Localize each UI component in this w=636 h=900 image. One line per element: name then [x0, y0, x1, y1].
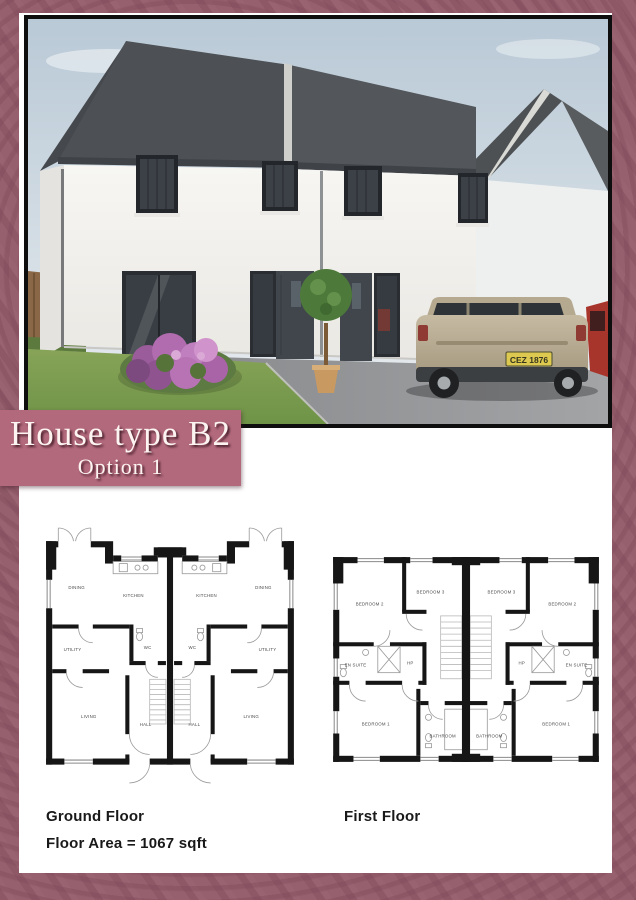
- room-label: BATHROOM: [476, 734, 503, 739]
- caption-floor-area: Floor Area = 1067 sqft: [46, 835, 207, 852]
- room-label: BEDROOM 3: [417, 590, 445, 595]
- caption-ground-floor: Ground Floor: [46, 808, 144, 825]
- room-label: WC: [189, 645, 197, 650]
- downpipe: [61, 169, 64, 347]
- caption-first-floor: First Floor: [344, 808, 420, 825]
- room-label: HP: [407, 661, 413, 666]
- cloud: [496, 39, 600, 59]
- downpipe: [320, 171, 323, 357]
- brochure-page: { "banner": { "title": "House type B2", …: [0, 0, 636, 900]
- room-label: HALL: [140, 722, 152, 727]
- license-plate-text: CEZ 1876: [510, 355, 549, 365]
- room-label: UTILITY: [259, 647, 277, 652]
- room-label: DINING: [68, 585, 85, 590]
- first-floor-plan: BEDROOM 2 BEDROOM 3 BEDROOM 3 BEDROOM 2 …: [331, 551, 601, 770]
- car: CEZ 1876: [406, 297, 598, 401]
- room-label: KITCHEN: [123, 593, 144, 598]
- room-label: UTILITY: [64, 647, 82, 652]
- house-photo: CEZ 1876: [28, 19, 608, 424]
- room-label: HP: [519, 661, 525, 666]
- title-banner: House type B2 Option 1: [0, 410, 241, 486]
- page-title: House type B2: [0, 414, 241, 454]
- room-label: BEDROOM 2: [356, 602, 384, 607]
- room-label: DINING: [255, 585, 272, 590]
- room-label: EN SUITE: [566, 663, 588, 668]
- room-label: BEDROOM 1: [542, 721, 570, 726]
- room-label: BEDROOM 2: [548, 602, 576, 607]
- room-label: EN SUITE: [345, 663, 367, 668]
- page-subtitle: Option 1: [0, 454, 241, 480]
- room-label: KITCHEN: [196, 593, 217, 598]
- room-label: LIVING: [81, 714, 97, 719]
- room-label: BEDROOM 3: [488, 590, 516, 595]
- room-label: WC: [144, 645, 152, 650]
- ground-floor-plan: DINING KITCHEN KITCHEN DINING UTILITY WC…: [44, 527, 296, 789]
- room-label: HALL: [189, 722, 201, 727]
- room-label: LIVING: [243, 714, 259, 719]
- room-label: BEDROOM 1: [362, 721, 390, 726]
- room-label: BATHROOM: [429, 734, 456, 739]
- photo-frame: CEZ 1876: [24, 15, 612, 428]
